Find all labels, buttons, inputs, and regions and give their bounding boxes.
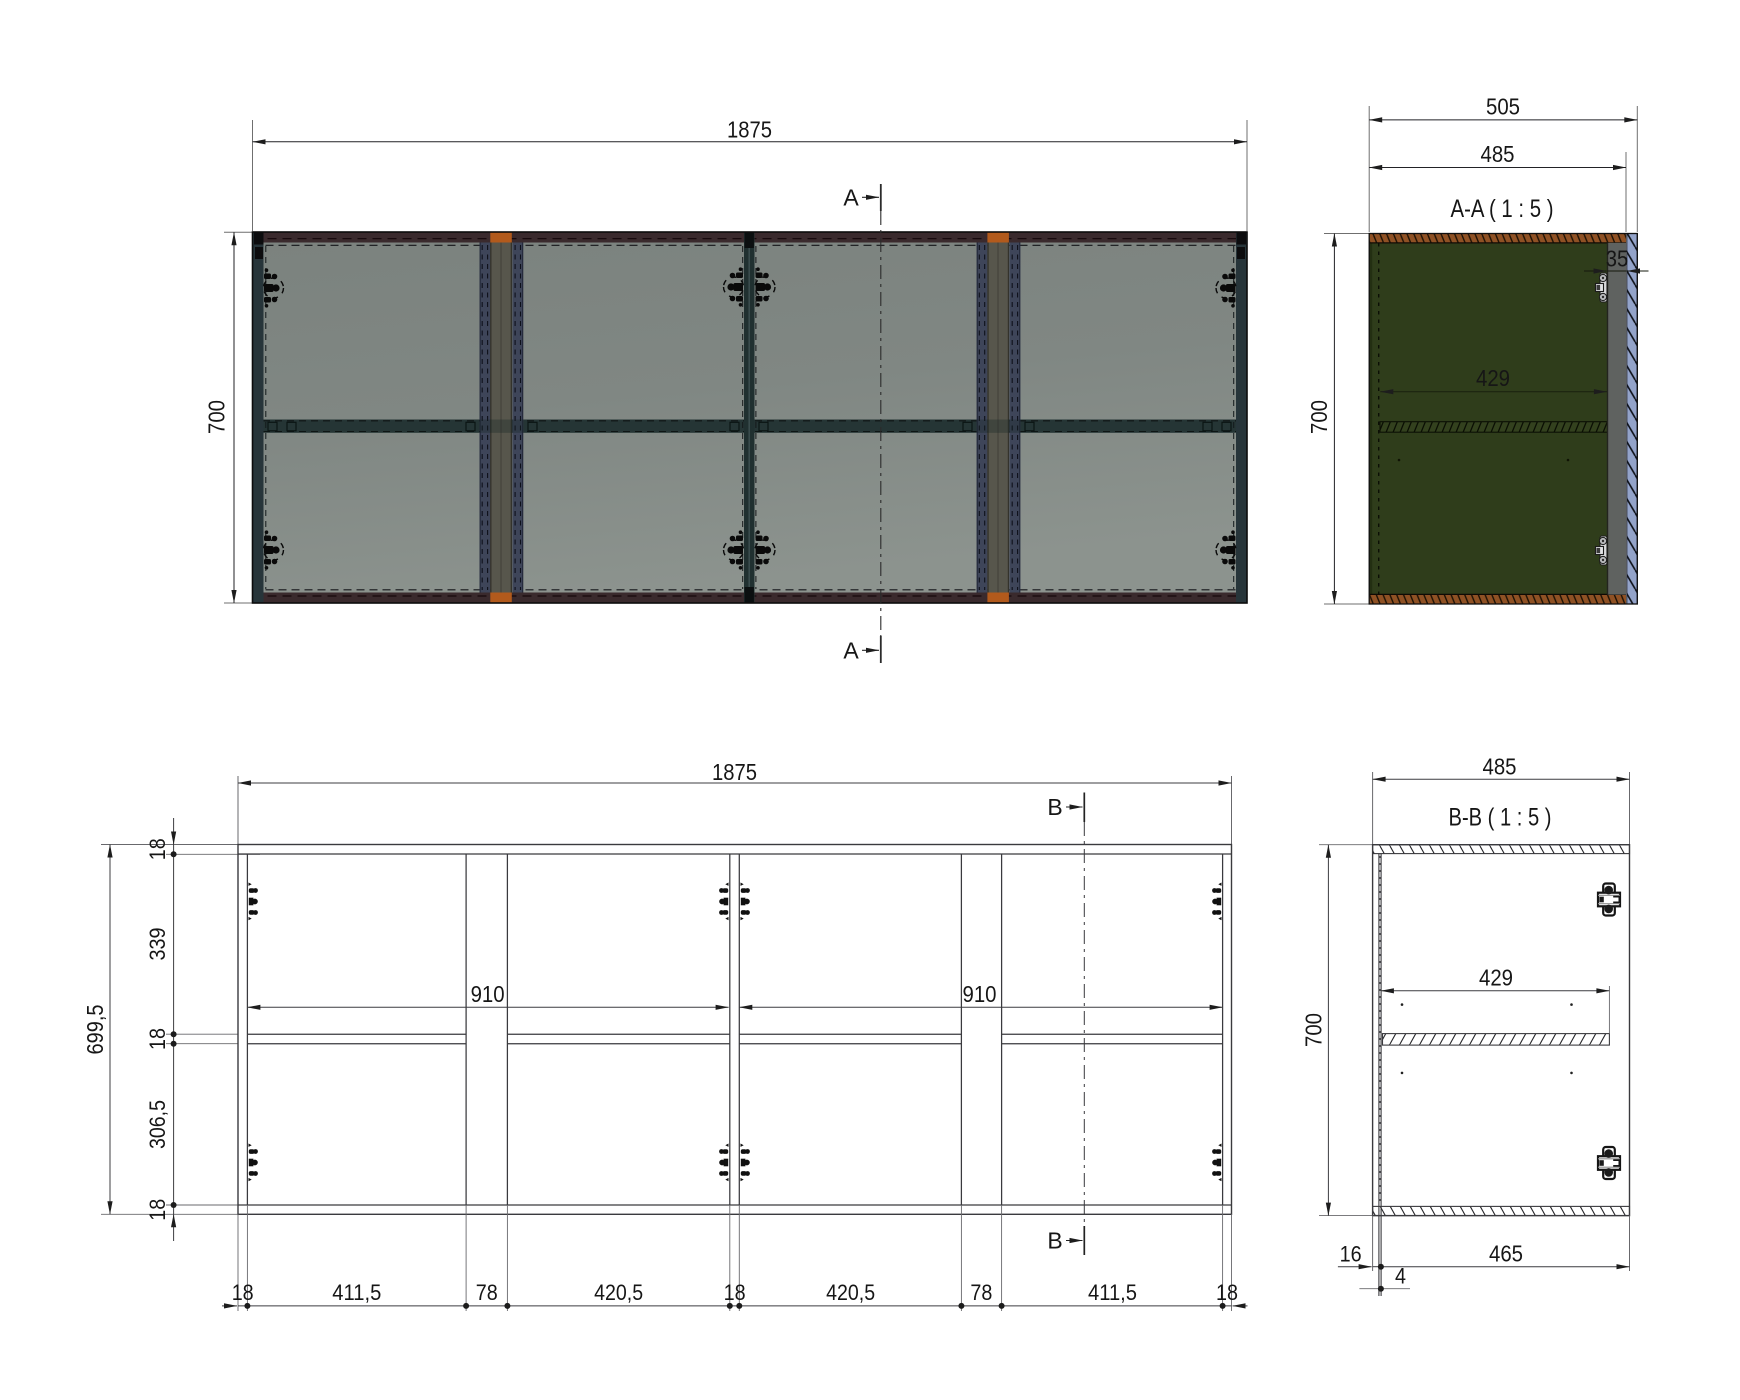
svg-text:B-B ( 1 : 5 ): B-B ( 1 : 5 ) (1449, 804, 1552, 832)
svg-text:78: 78 (476, 1280, 498, 1305)
svg-text:18: 18 (232, 1280, 254, 1305)
svg-text:16: 16 (1340, 1242, 1362, 1267)
svg-text:420,5: 420,5 (826, 1280, 875, 1305)
svg-text:A-A ( 1 : 5 ): A-A ( 1 : 5 ) (1451, 195, 1554, 223)
svg-text:35: 35 (1606, 246, 1629, 272)
svg-text:78: 78 (970, 1280, 992, 1305)
svg-text:485: 485 (1483, 754, 1517, 780)
svg-text:465: 465 (1489, 1241, 1523, 1267)
svg-text:700: 700 (1301, 1013, 1327, 1047)
svg-text:306,5: 306,5 (145, 1100, 170, 1149)
svg-text:B: B (1047, 794, 1062, 820)
svg-text:485: 485 (1481, 141, 1515, 167)
svg-text:A: A (843, 638, 859, 664)
svg-text:700: 700 (204, 400, 230, 434)
svg-text:429: 429 (1476, 365, 1510, 391)
svg-text:339: 339 (145, 928, 170, 961)
svg-text:505: 505 (1486, 94, 1520, 120)
svg-text:910: 910 (471, 981, 505, 1007)
svg-text:700: 700 (1306, 400, 1332, 434)
svg-text:411,5: 411,5 (332, 1280, 381, 1305)
svg-text:910: 910 (963, 981, 997, 1007)
svg-text:699,5: 699,5 (82, 1005, 108, 1055)
svg-text:4: 4 (1395, 1264, 1406, 1289)
svg-text:18: 18 (145, 1199, 170, 1221)
svg-text:18: 18 (145, 1028, 170, 1050)
svg-text:18: 18 (724, 1280, 746, 1305)
svg-text:429: 429 (1479, 965, 1513, 991)
svg-text:411,5: 411,5 (1088, 1280, 1137, 1305)
svg-text:420,5: 420,5 (594, 1280, 643, 1305)
svg-text:B: B (1047, 1228, 1062, 1254)
svg-text:1875: 1875 (727, 117, 772, 143)
svg-text:1875: 1875 (712, 759, 757, 785)
svg-text:18: 18 (1216, 1280, 1238, 1305)
svg-text:18: 18 (145, 838, 170, 860)
svg-text:A: A (843, 185, 859, 211)
